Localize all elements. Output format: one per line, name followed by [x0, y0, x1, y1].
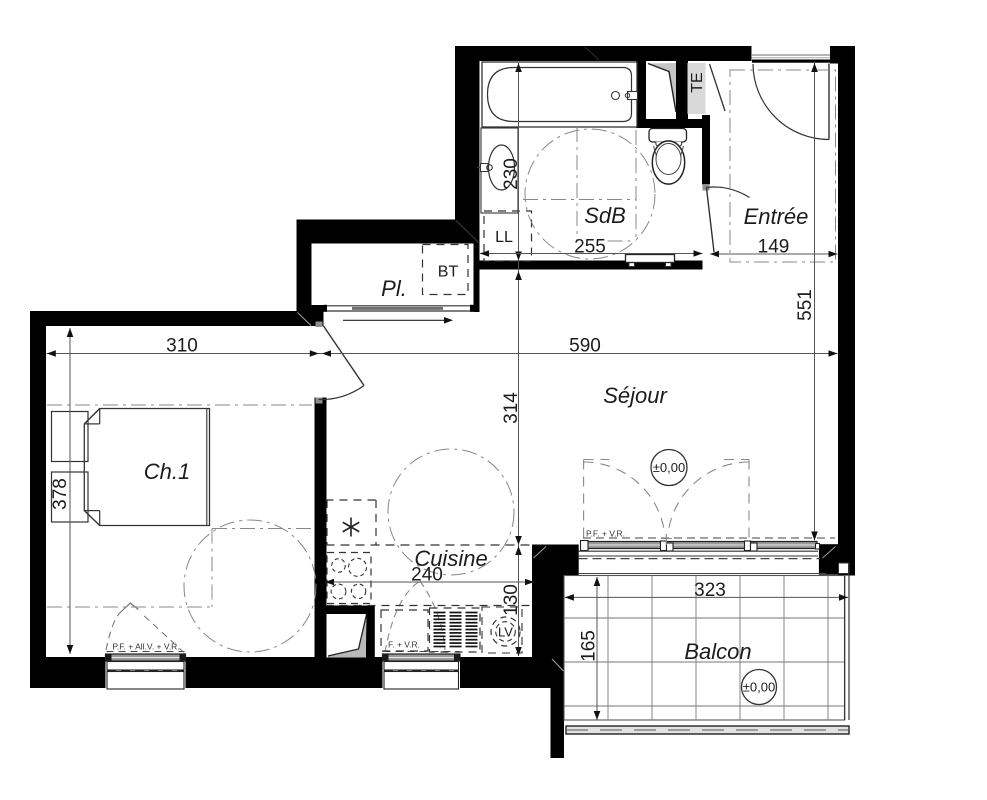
svg-text:378: 378 [50, 478, 71, 510]
svg-text:314: 314 [501, 392, 522, 424]
svg-text:240: 240 [411, 565, 443, 586]
svg-text:310: 310 [166, 336, 198, 357]
svg-text:255: 255 [574, 237, 606, 258]
svg-text:SdB: SdB [584, 203, 626, 228]
svg-text:LV: LV [498, 625, 513, 640]
svg-text:F. + V.R.: F. + V.R. [388, 640, 420, 650]
svg-text:323: 323 [694, 580, 726, 601]
svg-text:Balcon: Balcon [684, 639, 751, 664]
svg-text:230: 230 [501, 158, 522, 190]
svg-text:Séjour: Séjour [603, 383, 668, 408]
svg-text:±0,00: ±0,00 [653, 460, 685, 475]
svg-text:P.F. + All.V. + V.R.: P.F. + All.V. + V.R. [112, 642, 179, 652]
svg-text:590: 590 [569, 336, 601, 357]
svg-text:130: 130 [501, 584, 522, 616]
svg-text:TE: TE [689, 72, 706, 92]
svg-text:LL: LL [495, 229, 513, 246]
svg-text:165: 165 [579, 630, 600, 662]
svg-text:149: 149 [758, 236, 790, 257]
svg-text:Pl.: Pl. [381, 276, 407, 301]
svg-text:BT: BT [438, 264, 459, 281]
svg-text:551: 551 [795, 289, 816, 321]
svg-text:±0,00: ±0,00 [743, 680, 775, 695]
svg-text:P.F. + V.R.: P.F. + V.R. [586, 529, 625, 539]
svg-text:Entrée: Entrée [744, 204, 809, 229]
svg-text:Ch.1: Ch.1 [144, 459, 190, 484]
